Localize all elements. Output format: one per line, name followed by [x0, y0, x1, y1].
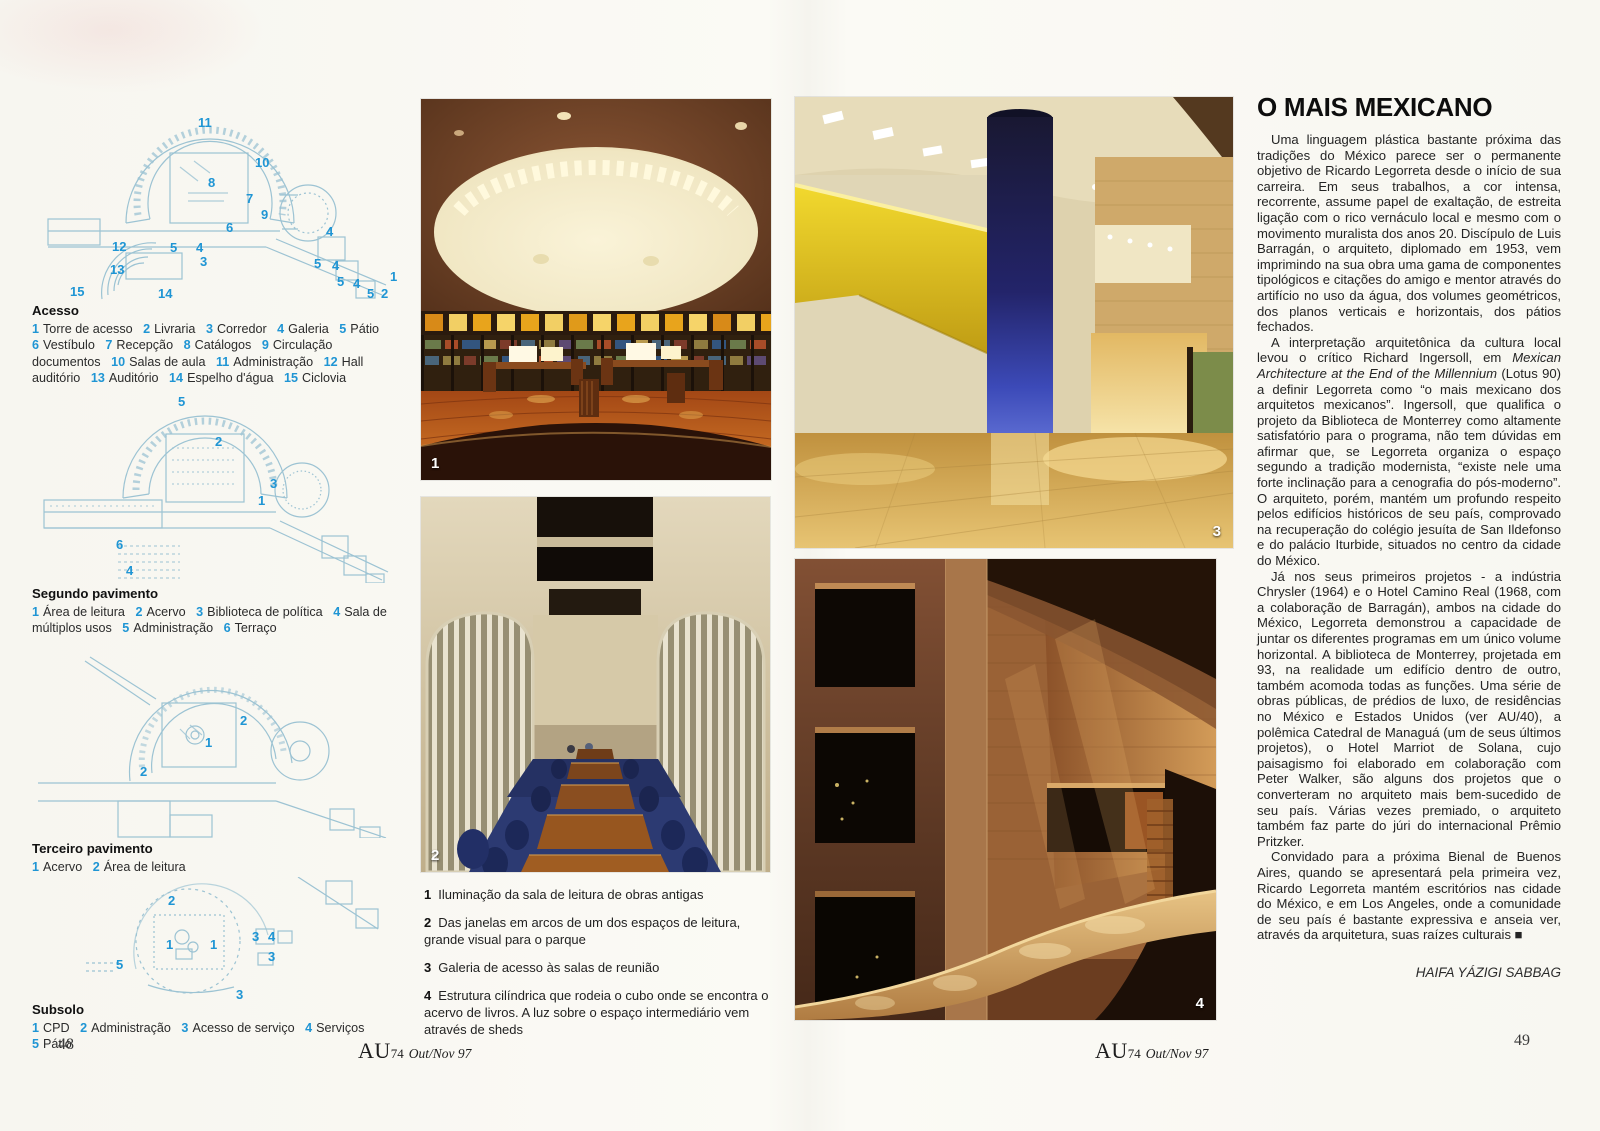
caption-number: 3 — [424, 960, 431, 975]
plan-marker: 15 — [70, 284, 84, 299]
caption-number: 4 — [424, 988, 431, 1003]
article-paragraph-1: Uma linguagem plástica bastante próxima … — [1257, 132, 1561, 335]
dark-window-openings — [815, 583, 915, 1007]
legend-label: Terraço — [235, 621, 277, 635]
legend-num: 7 — [105, 338, 112, 352]
legend-label: Vestíbulo — [43, 338, 95, 352]
legend-label: Biblioteca de política — [207, 605, 323, 619]
legend-heading: Subsolo — [32, 1002, 394, 1019]
legend-label: Acervo — [43, 860, 82, 874]
legend-label: Acesso de serviço — [192, 1021, 294, 1035]
plan-marker: 12 — [112, 239, 126, 254]
photo-number: 2 — [431, 847, 439, 864]
clerestory-glow — [425, 314, 771, 331]
photo-number: 3 — [1213, 523, 1221, 540]
caption-text: Das janelas em arcos de um dos espaços d… — [424, 915, 740, 947]
legend-label: Salas de aula — [129, 355, 205, 369]
author-byline: HAIFA YÁZIGI SABBAG — [1257, 965, 1561, 980]
plan-markers: 2 1 2 — [140, 713, 247, 779]
photo-arched-windows-art — [421, 497, 770, 872]
plan-marker: 4 — [268, 929, 276, 944]
legend-acesso: Acesso 1Torre de acesso 2Livraria 3Corre… — [32, 303, 394, 387]
plan-marker: 5 — [337, 274, 344, 289]
legend-num: 10 — [111, 355, 125, 369]
navy-column — [987, 117, 1053, 435]
floor-plan-terceiro-pavimento: 2 1 2 — [30, 643, 410, 838]
legend-num: 6 — [224, 621, 231, 635]
plan-marker: 1 — [205, 735, 212, 750]
legend-label: CPD — [43, 1021, 70, 1035]
article-paragraph-3: Já nos seus primeiros projetos - a indús… — [1257, 569, 1561, 850]
floor-plan-segundo-pavimento: 5 2 3 1 6 4 — [30, 378, 410, 583]
photo-1-reading-room: 1 — [421, 99, 771, 480]
plan-marker: 5 — [170, 240, 177, 255]
article-o-mais-mexicano: O MAIS MEXICANO Uma linguagem plástica b… — [1257, 92, 1561, 980]
legend-label: Administração — [133, 621, 213, 635]
plan-linework — [86, 877, 378, 993]
plan-marker: 4 — [353, 276, 361, 291]
article-paragraph-2: A interpretação arquitetônica da cultura… — [1257, 335, 1561, 569]
plan-marker: 7 — [246, 191, 253, 206]
plan-marker: 5 — [178, 394, 185, 409]
caption-number: 1 — [424, 887, 431, 902]
issue-date: Out/Nov 97 — [409, 1046, 472, 1061]
plan-marker: 3 — [270, 476, 277, 491]
plan-linework — [48, 130, 386, 299]
legend-label: Administração — [233, 355, 313, 369]
legend-label: Torre de acesso — [43, 322, 133, 336]
legend-label: Recepção — [116, 338, 173, 352]
legend-num: 5 — [339, 322, 346, 336]
legend-num: 1 — [32, 605, 39, 619]
issue-date: Out/Nov 97 — [1146, 1046, 1209, 1061]
floor-plan-acesso: 11 10 8 7 9 6 12 5 4 3 13 15 14 4 5 4 5 … — [30, 95, 410, 300]
plan-marker: 3 — [200, 254, 207, 269]
photo-3-yellow-hall: 3 — [795, 97, 1233, 548]
legend-num: 11 — [216, 355, 229, 369]
legend-num: 1 — [32, 860, 39, 874]
legend-subsolo: Subsolo 1CPD 2Administração 3Acesso de s… — [32, 1002, 394, 1053]
legend-terceiro-pavimento: Terceiro pavimento 1Acervo 2Área de leit… — [32, 841, 394, 875]
legend-items: 1Acervo 2Área de leitura — [32, 859, 394, 876]
photo-brick-gallery-art — [795, 559, 1216, 1020]
plan-marker: 8 — [208, 175, 215, 190]
article-paragraph-4: Convidado para a próxima Bienal de Bueno… — [1257, 849, 1561, 943]
au-magazine-logo: AU — [358, 1038, 391, 1063]
floor-plan-subsolo: 2 1 1 3 4 3 5 3 — [30, 877, 410, 1005]
legend-num: 9 — [262, 338, 269, 352]
legend-num: 2 — [93, 860, 100, 874]
plan-marker: 6 — [226, 220, 233, 235]
plan-marker: 2 — [240, 713, 247, 728]
legend-heading: Acesso — [32, 303, 394, 320]
legend-segundo-pavimento: Segundo pavimento 1Área de leitura 2Acer… — [32, 586, 394, 637]
legend-label: Administração — [91, 1021, 171, 1035]
footer-right: AU74Out/Nov 97 — [1095, 1038, 1208, 1064]
legend-num: 8 — [184, 338, 191, 352]
legend-num: 4 — [333, 605, 340, 619]
plan-marker: 11 — [198, 115, 212, 130]
photo-reading-room-art — [421, 99, 771, 480]
legend-heading: Terceiro pavimento — [32, 841, 394, 858]
page-number-right: 49 — [1514, 1032, 1530, 1050]
legend-num: 3 — [196, 605, 203, 619]
caption-number: 2 — [424, 915, 431, 930]
legend-items: 1Área de leitura 2Acervo 3Biblioteca de … — [32, 604, 394, 637]
plan-marker: 5 — [116, 957, 123, 972]
legend-num: 12 — [324, 355, 338, 369]
magazine-spread: 11 10 8 7 9 6 12 5 4 3 13 15 14 4 5 4 5 … — [0, 0, 1600, 1131]
legend-num: 4 — [305, 1021, 312, 1035]
legend-items: 1CPD 2Administração 3Acesso de serviço 4… — [32, 1020, 394, 1053]
legend-num: 2 — [143, 322, 150, 336]
caption-text: Galeria de acesso às salas de reunião — [438, 960, 659, 975]
legend-num: 2 — [80, 1021, 87, 1035]
caption-1: 1Iluminação da sala de leitura de obras … — [424, 886, 776, 903]
legend-label: Galeria — [288, 322, 329, 336]
plan-marker: 10 — [255, 155, 269, 170]
legend-num: 4 — [277, 322, 284, 336]
legend-label: Pátio — [350, 322, 379, 336]
plan-marker: 3 — [268, 949, 275, 964]
legend-num: 5 — [32, 1037, 39, 1051]
plan-marker: 2 — [381, 286, 388, 300]
legend-items: 1Torre de acesso 2Livraria 3Corredor 4Ga… — [32, 321, 394, 387]
plan-marker: 1 — [210, 937, 217, 952]
page-number-left: 48 — [58, 1036, 74, 1054]
plan-marker: 2 — [168, 893, 175, 908]
plan-marker: 1 — [166, 937, 173, 952]
plan-marker: 6 — [116, 537, 123, 552]
footer-left: AU74Out/Nov 97 — [358, 1038, 471, 1064]
plan-markers: 2 1 1 3 4 3 5 3 — [116, 893, 276, 1002]
issue-number: 74 — [391, 1046, 404, 1061]
floor-plans-column: 11 10 8 7 9 6 12 5 4 3 13 15 14 4 5 4 5 … — [30, 90, 410, 1050]
legend-num: 5 — [122, 621, 129, 635]
photo-number: 1 — [431, 455, 439, 472]
caption-3: 3Galeria de acesso às salas de reunião — [424, 959, 776, 976]
legend-label: Livraria — [154, 322, 195, 336]
legend-num: 3 — [206, 322, 213, 336]
plan-marker: 5 — [367, 286, 374, 300]
photo-number: 4 — [1196, 995, 1204, 1012]
article-title: O MAIS MEXICANO — [1257, 92, 1561, 123]
plan-marker: 3 — [252, 929, 259, 944]
plan-marker: 1 — [258, 493, 265, 508]
au-magazine-logo: AU — [1095, 1038, 1128, 1063]
plan-marker: 4 — [332, 258, 340, 273]
photo-yellow-hall-art — [795, 97, 1233, 548]
caption-2: 2Das janelas em arcos de um dos espaços … — [424, 914, 776, 948]
photo-2-arched-windows: 2 — [421, 497, 770, 872]
plan-marker: 5 — [314, 256, 321, 271]
legend-num: 6 — [32, 338, 39, 352]
plan-marker: 13 — [110, 262, 124, 277]
legend-num: 1 — [32, 322, 39, 336]
plan-marker: 9 — [261, 207, 268, 222]
plan-marker: 4 — [326, 224, 334, 239]
legend-label: Acervo — [146, 605, 185, 619]
plan-marker: 4 — [126, 563, 134, 578]
plan-marker: 4 — [196, 240, 204, 255]
plan-marker: 2 — [140, 764, 147, 779]
legend-label: Corredor — [217, 322, 267, 336]
paragraph-2-text: (Lotus 90) a definir Legorreta como “o m… — [1257, 366, 1561, 568]
legend-num: 3 — [181, 1021, 188, 1035]
issue-number: 74 — [1128, 1046, 1141, 1061]
legend-label: Catálogos — [195, 338, 252, 352]
legend-label: Área de leitura — [104, 860, 186, 874]
plan-marker: 14 — [158, 286, 173, 300]
caption-text: Iluminação da sala de leitura de obras a… — [438, 887, 703, 902]
plan-marker: 1 — [390, 269, 397, 284]
plan-marker: 3 — [236, 987, 243, 1002]
legend-label: Serviços — [316, 1021, 364, 1035]
plan-marker: 2 — [215, 434, 222, 449]
photo-4-brick-gallery: 4 — [795, 559, 1216, 1020]
legend-num: 2 — [135, 605, 142, 619]
legend-num: 1 — [32, 1021, 39, 1035]
photo-captions: 1Iluminação da sala de leitura de obras … — [424, 886, 776, 1049]
caption-4: 4Estrutura cilíndrica que rodeia o cubo … — [424, 987, 776, 1038]
legend-heading: Segundo pavimento — [32, 586, 394, 603]
caption-text: Estrutura cilíndrica que rodeia o cubo o… — [424, 988, 769, 1037]
legend-label: Área de leitura — [43, 605, 125, 619]
